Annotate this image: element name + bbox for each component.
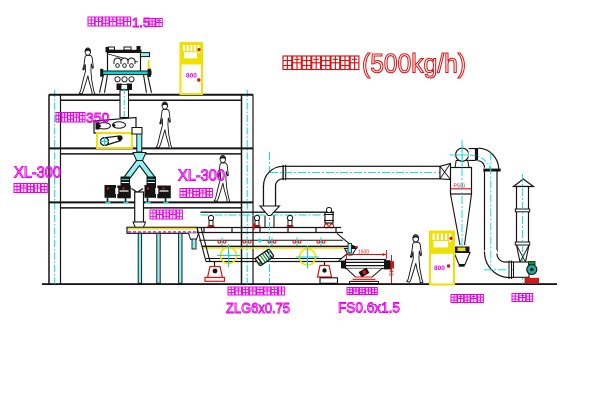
svg-text:ZLG6x0.75: ZLG6x0.75 (226, 300, 290, 317)
svg-text:800: 800 (434, 265, 445, 272)
svg-text:1.5: 1.5 (132, 15, 150, 30)
svg-text:XL-300: XL-300 (14, 165, 61, 182)
svg-text:XL-300: XL-300 (178, 168, 225, 185)
svg-text:800: 800 (186, 73, 197, 80)
svg-text:350: 350 (86, 110, 110, 126)
svg-text:1500: 1500 (358, 250, 369, 256)
svg-text:(500kg/h): (500kg/h) (362, 49, 466, 79)
svg-text:FS0.6x1.5: FS0.6x1.5 (338, 300, 400, 317)
